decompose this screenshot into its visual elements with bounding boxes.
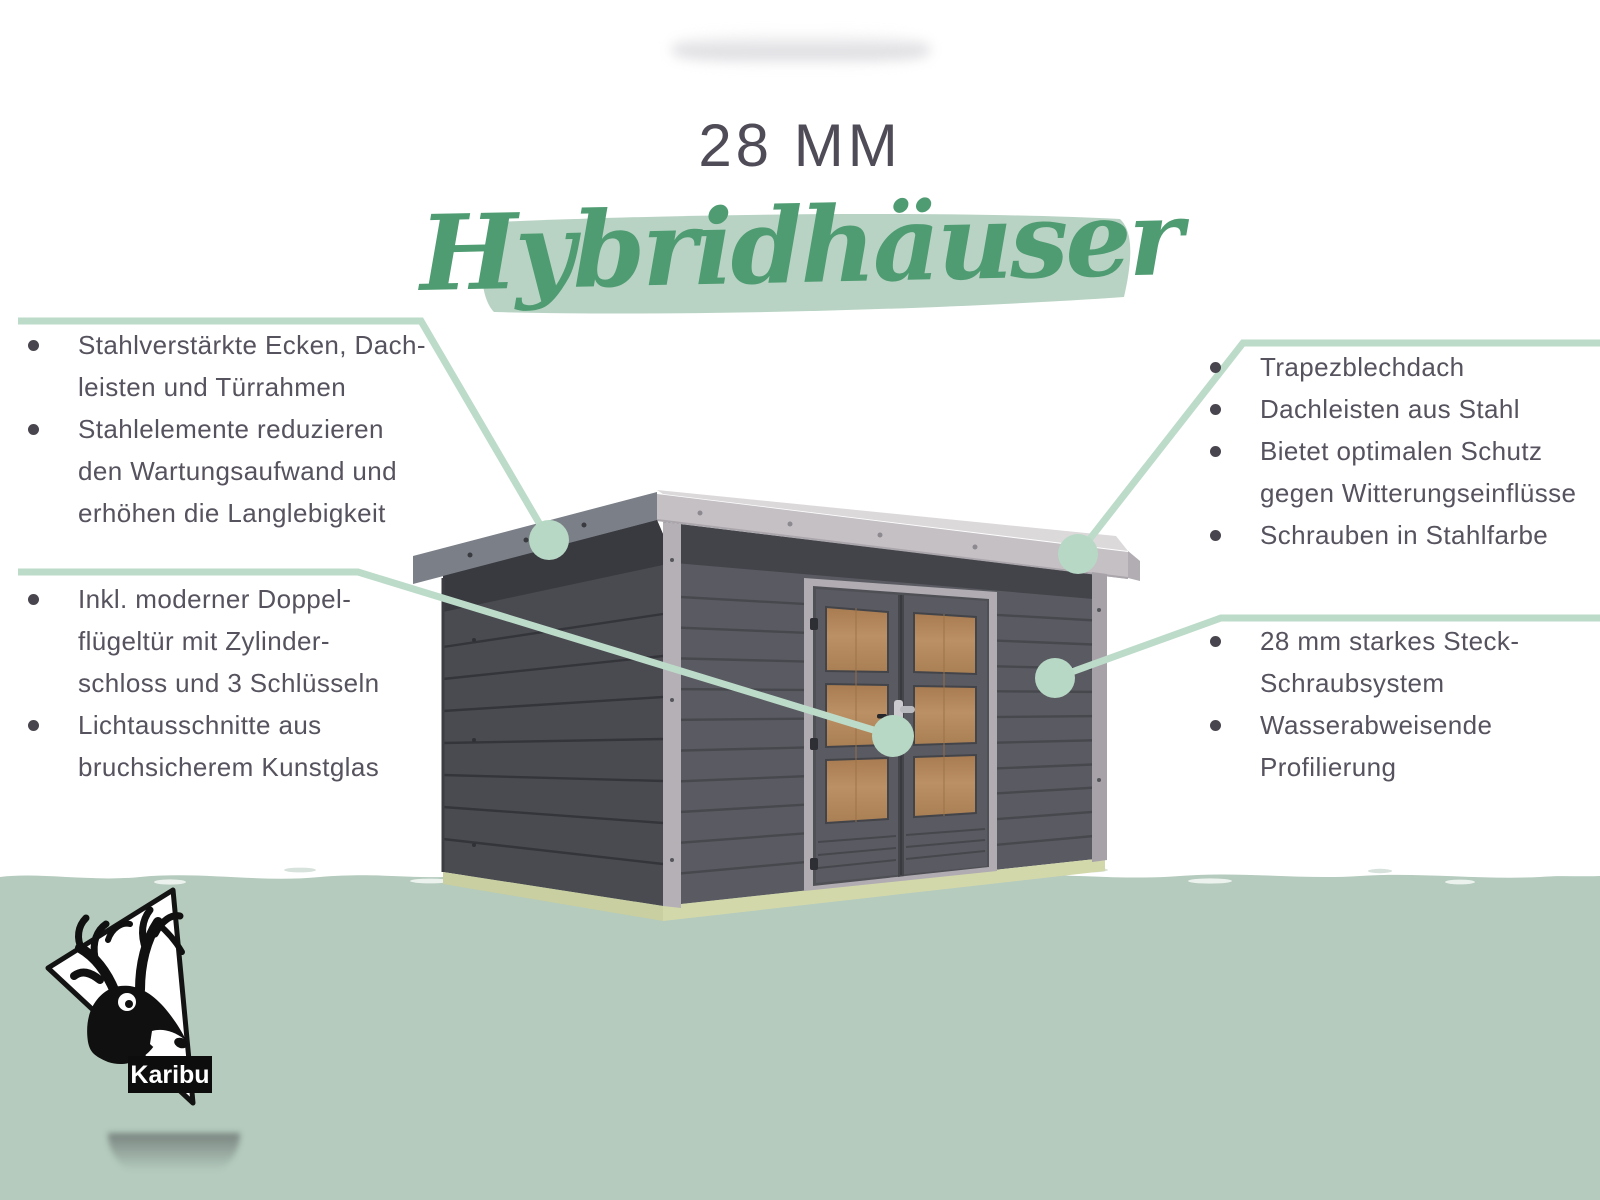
feature-line: erhöhen die Langlebigkeit [78, 492, 397, 534]
corner-trim-left [663, 522, 681, 908]
list-item: Bietet optimalen Schutz gegen Witterungs… [1198, 430, 1576, 514]
feature-line: Stahlverstärkte Ecken, Dach- [78, 324, 426, 366]
feature-line: Profilierung [1260, 746, 1492, 788]
feature-line: Wasserabweisende [1260, 704, 1492, 746]
feature-line: den Wartungsaufwand und [78, 450, 397, 492]
callout-bottom-left: Inkl. moderner Doppel- flügeltür mit Zyl… [16, 578, 380, 788]
ground [0, 867, 1600, 1200]
feature-line: Lichtausschnitte aus [78, 704, 379, 746]
list-item: Wasserabweisende Profilierung [1198, 704, 1519, 788]
list-item: Stahlelemente reduzieren den Wartungsauf… [16, 408, 426, 534]
feature-line: gegen Witterungseinflüsse [1260, 472, 1576, 514]
callout-dot-roof-right [1058, 534, 1098, 574]
bullet-icon [1210, 636, 1221, 647]
feature-line: Schraubsystem [1260, 662, 1519, 704]
bullet-icon [28, 720, 39, 731]
list-item: Trapezblechdach [1198, 346, 1576, 388]
list-item: Dachleisten aus Stahl [1198, 388, 1576, 430]
bullet-icon [1210, 530, 1221, 541]
feature-line: schloss und 3 Schlüsseln [78, 662, 380, 704]
callout-top-left: Stahlverstärkte Ecken, Dach- leisten und… [16, 324, 426, 534]
feature-line: Inkl. moderner Doppel- [78, 578, 380, 620]
callout-dot-roof-left [529, 520, 569, 560]
callout-dot-wall-right [1035, 658, 1075, 698]
infographic-page: Karibu 28 MM Hybridhäuser Stahlverstärkt… [0, 0, 1600, 1200]
bullet-icon [28, 424, 39, 435]
callout-bottom-right: 28 mm starkes Steck- Schraubsystem Wasse… [1198, 620, 1519, 788]
feature-line: 28 mm starkes Steck- [1260, 620, 1519, 662]
page-title: 28 MM [0, 112, 1600, 180]
feature-line: Schrauben in Stahlfarbe [1260, 514, 1548, 556]
karibu-wordmark: Karibu [130, 1061, 209, 1089]
bullet-icon [1210, 720, 1221, 731]
list-item: Schrauben in Stahlfarbe [1198, 514, 1576, 556]
bullet-icon [28, 340, 39, 351]
callout-top-right: Trapezblechdach Dachleisten aus Stahl Bi… [1198, 346, 1576, 556]
list-item: Lichtausschnitte aus bruchsicherem Kunst… [16, 704, 380, 788]
list-item: 28 mm starkes Steck- Schraubsystem [1198, 620, 1519, 704]
bullet-icon [1210, 362, 1221, 373]
callout-dot-door-handle [872, 715, 914, 757]
bullet-icon [1210, 446, 1221, 457]
feature-line: flügeltür mit Zylinder- [78, 620, 380, 662]
feature-line: bruchsicherem Kunstglas [78, 746, 379, 788]
shed [413, 490, 1140, 921]
list-item: Stahlverstärkte Ecken, Dach- leisten und… [16, 324, 426, 408]
list-item: Inkl. moderner Doppel- flügeltür mit Zyl… [16, 578, 380, 704]
feature-line: Trapezblechdach [1260, 346, 1465, 388]
corner-trim-right [1092, 572, 1107, 862]
feature-line: leisten und Türrahmen [78, 366, 426, 408]
bullet-icon [1210, 404, 1221, 415]
top-smudge-artifact [672, 34, 930, 64]
feature-line: Stahlelemente reduzieren [78, 408, 397, 450]
feature-line: Dachleisten aus Stahl [1260, 388, 1520, 430]
shed-left-wall [443, 520, 663, 906]
feature-line: Bietet optimalen Schutz [1260, 430, 1576, 472]
bullet-icon [28, 594, 39, 605]
